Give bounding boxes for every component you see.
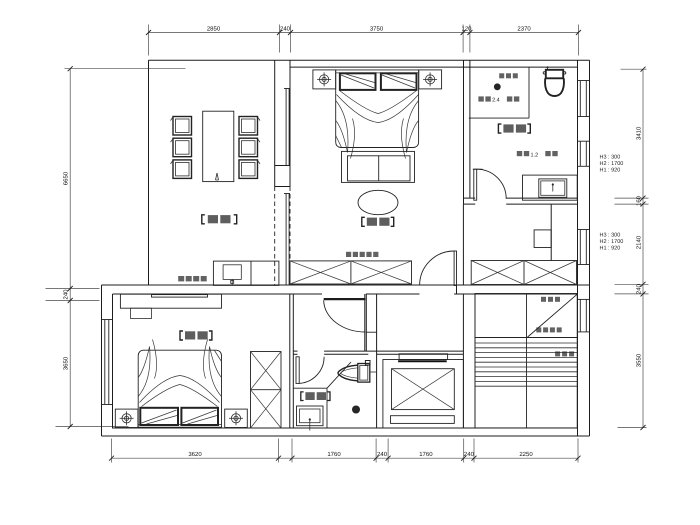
svg-text:2850: 2850 bbox=[207, 26, 221, 33]
svg-text:240: 240 bbox=[464, 451, 475, 458]
svg-text:H3 : 300: H3 : 300 bbox=[600, 155, 621, 161]
svg-text:H2 : 1700: H2 : 1700 bbox=[600, 161, 624, 167]
svg-text:6650: 6650 bbox=[63, 171, 70, 185]
svg-text:120: 120 bbox=[461, 26, 472, 33]
svg-text:240: 240 bbox=[63, 289, 70, 300]
svg-text:H1 : 920: H1 : 920 bbox=[600, 246, 621, 252]
svg-text:3750: 3750 bbox=[370, 26, 384, 33]
svg-text:2.4: 2.4 bbox=[492, 98, 500, 104]
svg-text:H3 : 300: H3 : 300 bbox=[600, 233, 621, 239]
svg-text:1760: 1760 bbox=[419, 451, 433, 458]
svg-text:3650: 3650 bbox=[63, 356, 70, 370]
svg-text:2140: 2140 bbox=[636, 235, 643, 249]
svg-text:1760: 1760 bbox=[327, 451, 341, 458]
svg-text:3550: 3550 bbox=[636, 353, 643, 367]
svg-text:H1 : 920: H1 : 920 bbox=[600, 168, 621, 174]
svg-text:3620: 3620 bbox=[188, 451, 202, 458]
svg-text:2370: 2370 bbox=[517, 26, 531, 33]
svg-text:240: 240 bbox=[280, 26, 291, 33]
svg-text:240: 240 bbox=[377, 451, 388, 458]
svg-text:2250: 2250 bbox=[519, 451, 533, 458]
svg-text:3410: 3410 bbox=[636, 126, 643, 140]
svg-text:H2 : 1700: H2 : 1700 bbox=[600, 239, 624, 245]
svg-text:1.2: 1.2 bbox=[531, 152, 539, 158]
svg-text:240: 240 bbox=[636, 283, 643, 294]
svg-text:160: 160 bbox=[636, 195, 643, 206]
